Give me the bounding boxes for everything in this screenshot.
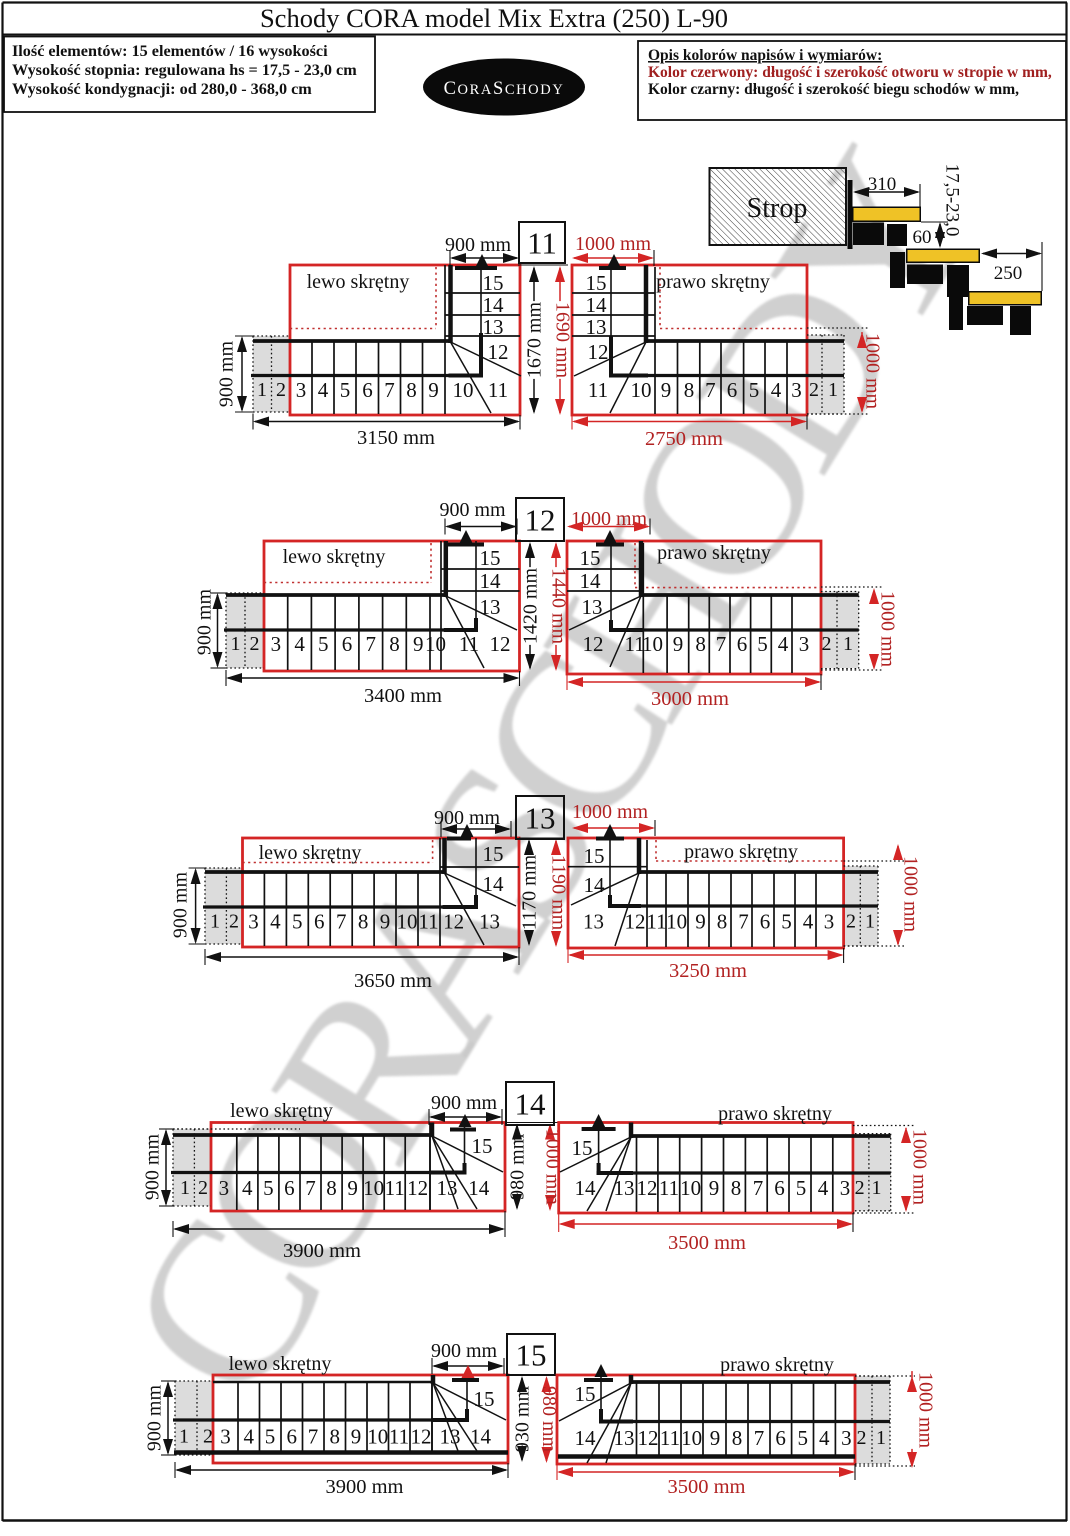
svg-text:1000 mm: 1000 mm [914,1372,936,1449]
svg-text:2: 2 [198,1177,208,1199]
svg-text:15: 15 [483,842,504,866]
svg-text:CORASCHODY: CORASCHODY [444,79,565,99]
svg-text:1000 mm: 1000 mm [575,233,652,255]
svg-text:11: 11 [418,910,438,934]
svg-text:6: 6 [737,632,748,656]
svg-text:3500 mm: 3500 mm [667,1476,745,1498]
svg-text:10: 10 [631,378,652,402]
svg-text:7: 7 [305,1176,316,1200]
svg-text:3: 3 [791,378,802,402]
svg-text:4: 4 [243,1425,254,1449]
svg-text:14: 14 [580,569,602,593]
svg-text:lewo skrętny: lewo skrętny [283,546,386,568]
svg-text:2: 2 [855,1177,865,1199]
svg-text:1: 1 [872,1177,882,1199]
svg-text:1: 1 [843,633,853,655]
svg-text:6: 6 [727,378,738,402]
svg-text:4: 4 [318,378,329,402]
svg-text:9: 9 [673,632,684,656]
svg-text:14: 14 [584,873,606,897]
svg-text:14: 14 [483,293,505,317]
svg-text:11: 11 [488,378,508,402]
svg-text:3: 3 [799,632,810,656]
svg-text:2: 2 [846,911,856,933]
svg-text:6: 6 [314,910,325,934]
svg-text:1: 1 [865,911,875,933]
svg-text:5: 5 [797,1426,808,1450]
svg-text:3000 mm: 3000 mm [651,688,729,710]
svg-text:Wysokość stopnia: regulowana: Wysokość stopnia: regulowana hs = 17,5 -… [12,61,357,79]
svg-text:prawo skrętny: prawo skrętny [656,271,770,293]
svg-text:2: 2 [857,1427,867,1449]
svg-text:1000 mm: 1000 mm [861,333,883,410]
svg-text:10: 10 [681,1426,702,1450]
svg-text:3250 mm: 3250 mm [669,960,747,982]
svg-text:15: 15 [584,844,605,868]
svg-text:11: 11 [588,378,608,402]
svg-text:12: 12 [411,1425,432,1449]
svg-text:14: 14 [468,1176,490,1200]
svg-text:1170 mm: 1170 mm [519,854,541,930]
svg-text:13: 13 [614,1426,635,1450]
svg-text:9: 9 [428,378,439,402]
svg-text:1000 mm: 1000 mm [899,856,921,933]
svg-text:3: 3 [841,1426,852,1450]
svg-text:10: 10 [425,632,446,656]
svg-text:5: 5 [781,910,792,934]
svg-text:2: 2 [250,633,260,655]
svg-text:12: 12 [588,340,609,364]
svg-text:12: 12 [625,910,646,934]
svg-text:10: 10 [367,1425,388,1449]
svg-text:4: 4 [818,1176,829,1200]
svg-text:9: 9 [347,1176,358,1200]
svg-text:4: 4 [819,1426,830,1450]
svg-text:2750 mm: 2750 mm [645,428,723,450]
svg-text:1420 mm: 1420 mm [520,568,542,645]
svg-text:900 mm: 900 mm [170,872,192,939]
svg-text:5: 5 [292,910,303,934]
svg-text:3900 mm: 3900 mm [283,1240,361,1262]
svg-text:7: 7 [705,378,716,402]
svg-text:7: 7 [753,1176,764,1200]
svg-text:10: 10 [363,1176,384,1200]
svg-text:7: 7 [336,910,347,934]
svg-text:prawo skrętny: prawo skrętny [718,1103,832,1125]
svg-text:13: 13 [583,910,604,934]
svg-text:4: 4 [242,1176,253,1200]
svg-text:prawo skrętny: prawo skrętny [684,841,798,863]
svg-text:lewo skrętny: lewo skrętny [259,842,362,864]
svg-text:6: 6 [362,378,373,402]
svg-text:6: 6 [342,632,353,656]
svg-text:Kolor czerwony: długość i sze: Kolor czerwony: długość i szerokość otwo… [648,64,1052,81]
svg-text:15: 15 [580,546,601,570]
svg-text:13: 13 [525,801,556,836]
svg-text:3650 mm: 3650 mm [354,970,432,992]
svg-text:lewo skrętny: lewo skrętny [229,1353,332,1375]
svg-text:1: 1 [828,379,838,401]
svg-text:3: 3 [271,632,282,656]
svg-text:8: 8 [695,632,706,656]
svg-text:2: 2 [809,379,819,401]
svg-text:7: 7 [738,910,749,934]
svg-text:8: 8 [326,1176,337,1200]
svg-text:4: 4 [270,910,281,934]
svg-text:1000 mm: 1000 mm [541,1129,563,1206]
svg-text:5: 5 [265,1425,276,1449]
svg-text:9: 9 [380,910,391,934]
svg-text:6: 6 [775,1426,786,1450]
svg-text:1: 1 [180,1177,190,1199]
svg-text:11: 11 [389,1425,409,1449]
svg-text:1670 mm: 1670 mm [524,302,546,379]
svg-text:2: 2 [822,633,832,655]
svg-text:12: 12 [525,503,556,538]
svg-text:900 mm: 900 mm [194,589,216,656]
svg-text:4: 4 [778,632,789,656]
svg-text:2: 2 [203,1426,213,1448]
svg-text:8: 8 [717,910,728,934]
svg-text:11: 11 [459,632,479,656]
svg-text:14: 14 [575,1426,597,1450]
svg-text:3900 mm: 3900 mm [325,1476,403,1498]
svg-text:5: 5 [796,1176,807,1200]
svg-text:900 mm: 900 mm [431,1340,498,1362]
svg-text:6: 6 [286,1425,297,1449]
svg-text:11: 11 [659,1176,679,1200]
svg-text:1: 1 [231,633,241,655]
svg-text:lewo skrętny: lewo skrętny [230,1100,333,1122]
svg-text:3400 mm: 3400 mm [364,685,442,707]
svg-text:250: 250 [994,263,1023,284]
svg-text:prawo skrętny: prawo skrętny [720,1354,834,1376]
svg-text:10: 10 [397,910,418,934]
svg-text:15: 15 [483,271,504,295]
svg-text:900 mm: 900 mm [216,341,238,408]
svg-text:3: 3 [248,910,259,934]
svg-text:2: 2 [229,911,239,933]
svg-text:8: 8 [406,378,417,402]
svg-text:1: 1 [179,1426,189,1448]
svg-text:15: 15 [575,1382,596,1406]
svg-text:12: 12 [583,632,604,656]
svg-text:900 mm: 900 mm [142,1134,164,1201]
svg-text:1190 mm: 1190 mm [547,855,569,931]
svg-text:12: 12 [407,1176,428,1200]
svg-text:9: 9 [710,1426,721,1450]
svg-text:Wysokość kondygnacji: od 280,0: Wysokość kondygnacji: od 280,0 - 368,0 c… [12,80,312,98]
svg-text:Ilość elementów: 15 elementów: Ilość elementów: 15 elementów / 16 wysok… [12,42,328,60]
svg-text:prawo skrętny: prawo skrętny [657,542,771,564]
svg-text:1: 1 [210,911,220,933]
svg-text:13: 13 [614,1176,635,1200]
svg-text:5: 5 [757,632,768,656]
svg-text:14: 14 [470,1425,492,1449]
svg-text:15: 15 [516,1338,547,1373]
svg-text:6: 6 [284,1176,295,1200]
svg-text:12: 12 [443,910,464,934]
svg-text:Kolor czarny: długość i szero: Kolor czarny: długość i szerokość biegu … [648,81,1019,98]
svg-text:12: 12 [638,1426,659,1450]
svg-text:5: 5 [263,1176,274,1200]
svg-text:3500 mm: 3500 mm [668,1232,746,1254]
svg-text:15: 15 [572,1136,593,1160]
svg-text:9: 9 [709,1176,720,1200]
svg-text:1690 mm: 1690 mm [551,302,573,379]
svg-text:15: 15 [480,546,501,570]
svg-text:9: 9 [413,632,424,656]
svg-text:12: 12 [637,1176,658,1200]
svg-text:11: 11 [660,1426,680,1450]
svg-text:1: 1 [257,379,267,401]
svg-text:12: 12 [488,340,509,364]
svg-text:13: 13 [480,595,501,619]
svg-text:4: 4 [771,378,782,402]
svg-text:6: 6 [760,910,771,934]
svg-text:5: 5 [318,632,329,656]
svg-text:8: 8 [684,378,695,402]
svg-text:lewo skrętny: lewo skrętny [307,271,410,293]
svg-text:Opis kolorów napisów i wymiaró: Opis kolorów napisów i wymiarów: [648,47,882,64]
svg-text:7: 7 [716,632,727,656]
svg-text:14: 14 [515,1087,547,1122]
svg-text:5: 5 [749,378,760,402]
svg-text:10: 10 [642,632,663,656]
svg-text:9: 9 [351,1425,362,1449]
svg-text:14: 14 [575,1176,597,1200]
svg-text:7: 7 [308,1425,319,1449]
svg-text:9: 9 [695,910,706,934]
svg-text:8: 8 [732,1426,743,1450]
svg-text:6: 6 [774,1176,785,1200]
svg-text:13: 13 [479,910,500,934]
svg-text:900 mm: 900 mm [431,1092,498,1114]
svg-text:2: 2 [276,379,286,401]
svg-text:5: 5 [340,378,351,402]
svg-text:3150 mm: 3150 mm [357,427,435,449]
svg-text:9: 9 [661,378,672,402]
svg-text:17,5-23,0: 17,5-23,0 [942,164,963,237]
svg-text:13: 13 [586,315,607,339]
svg-text:3: 3 [824,910,835,934]
svg-text:11: 11 [646,910,666,934]
svg-text:15: 15 [472,1134,493,1158]
svg-text:3: 3 [840,1176,851,1200]
svg-text:Strop: Strop [747,193,808,224]
svg-text:7: 7 [365,632,376,656]
svg-text:7: 7 [384,378,395,402]
svg-text:10: 10 [453,378,474,402]
svg-text:15: 15 [474,1387,495,1411]
svg-text:11: 11 [385,1176,405,1200]
svg-text:8: 8 [329,1425,340,1449]
svg-text:Schody CORA model Mix Extra (2: Schody CORA model Mix Extra (250) L-90 [260,3,728,33]
svg-text:60: 60 [913,227,932,248]
svg-text:13: 13 [483,315,504,339]
svg-text:15: 15 [586,271,607,295]
svg-text:11: 11 [527,226,557,261]
svg-text:10: 10 [680,1176,701,1200]
svg-text:14: 14 [586,293,608,317]
svg-text:3: 3 [296,378,307,402]
svg-text:4: 4 [294,632,305,656]
svg-text:900 mm: 900 mm [445,234,512,256]
svg-text:7: 7 [754,1426,765,1450]
svg-text:1: 1 [876,1427,886,1449]
svg-text:900 mm: 900 mm [144,1385,166,1452]
svg-text:3: 3 [219,1176,230,1200]
svg-text:4: 4 [803,910,814,934]
svg-text:1000 mm: 1000 mm [876,591,898,668]
svg-text:1000 mm: 1000 mm [908,1129,930,1206]
svg-text:8: 8 [731,1176,742,1200]
svg-text:930 mm: 930 mm [512,1386,534,1453]
svg-text:14: 14 [483,872,505,896]
svg-text:8: 8 [358,910,369,934]
svg-text:13: 13 [440,1425,461,1449]
svg-text:13: 13 [582,595,603,619]
svg-text:1000 mm: 1000 mm [572,801,649,823]
svg-text:980 mm: 980 mm [507,1133,529,1200]
svg-text:12: 12 [490,632,511,656]
svg-text:900 mm: 900 mm [439,499,506,521]
svg-text:3: 3 [220,1425,231,1449]
svg-text:8: 8 [389,632,400,656]
svg-text:13: 13 [437,1176,458,1200]
svg-text:10: 10 [666,910,687,934]
svg-text:14: 14 [480,569,502,593]
